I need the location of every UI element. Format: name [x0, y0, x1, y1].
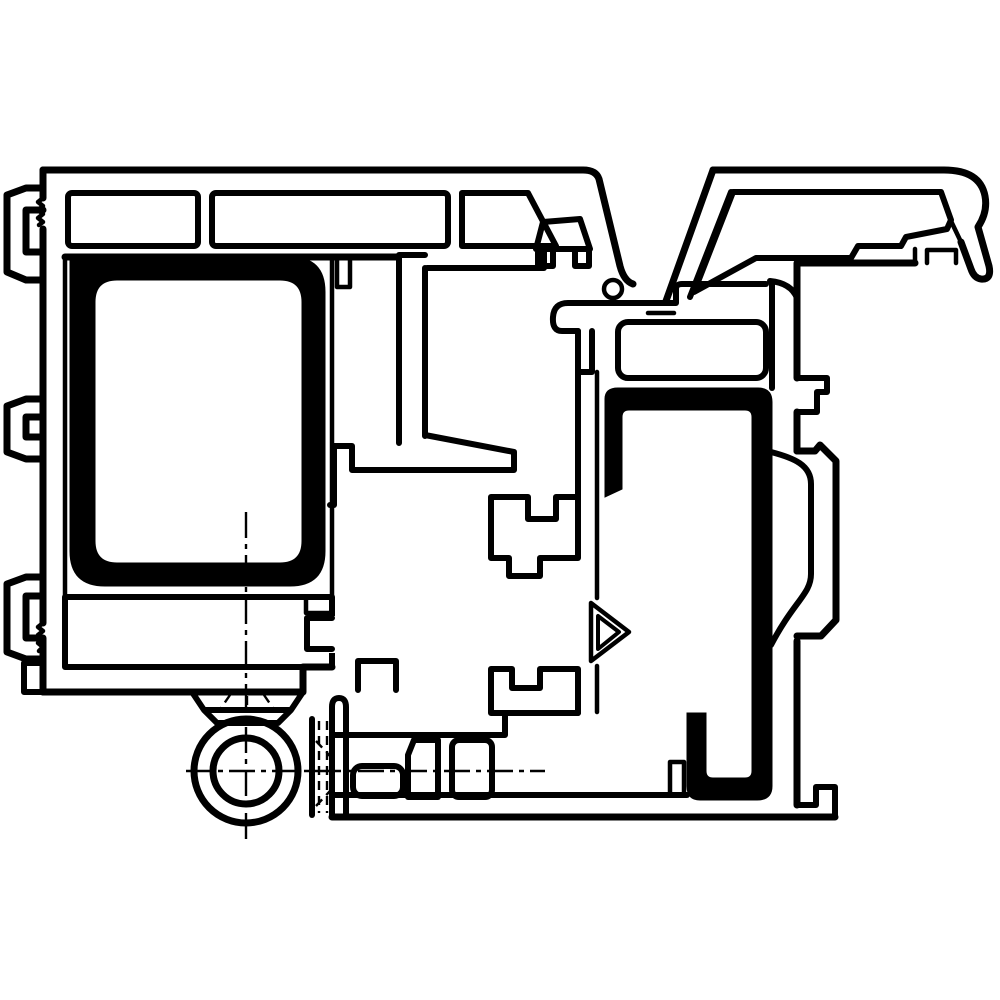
sash-bottom-left-hook [358, 661, 396, 690]
euro-groove-block-upper [491, 497, 578, 576]
overhang-cladding-profile [666, 170, 990, 301]
bottom-chamber-2 [408, 740, 438, 797]
frame-right-bump [797, 445, 836, 636]
profile-cross-section-drawing [0, 0, 1000, 1000]
top-beam-chamber-1 [68, 193, 198, 246]
hinge-side-bar [332, 698, 346, 817]
sash-left-wall [399, 255, 425, 443]
frame-bottom-edge [43, 667, 332, 692]
sash-top-chamber [618, 322, 766, 378]
frame-right-tab-upper [797, 378, 827, 412]
overhang-foot-left [915, 221, 961, 263]
frame-right-bump-inner [771, 452, 811, 645]
wall-anchor-bottom [7, 577, 43, 659]
glazing-bead [330, 435, 514, 505]
overhang-inner-chamber [694, 192, 951, 292]
steel-reinforcement-left [70, 257, 325, 586]
frame-right-profile [770, 263, 836, 816]
frame-right-foot [797, 787, 835, 816]
sash-bottom-upper-line [332, 713, 578, 735]
beam-underside-right [427, 252, 544, 268]
wall-anchor-middle [7, 399, 43, 459]
technical-drawing-page [0, 0, 1000, 1000]
beam-underside-slot [337, 257, 350, 287]
groove-wall-upper [578, 331, 592, 497]
steel-reinforcement-right [605, 388, 772, 800]
top-beam-chamber-2 [212, 193, 448, 246]
euro-groove-block-lower [491, 669, 578, 713]
seal-bulb [604, 280, 622, 298]
hidden-hinge-arm [316, 721, 330, 813]
reinforcement-pocket-walls [65, 257, 332, 596]
frame-lower-chamber [65, 597, 332, 667]
bottom-step-near-hook [670, 762, 684, 795]
bottom-chamber-3 [452, 740, 492, 797]
